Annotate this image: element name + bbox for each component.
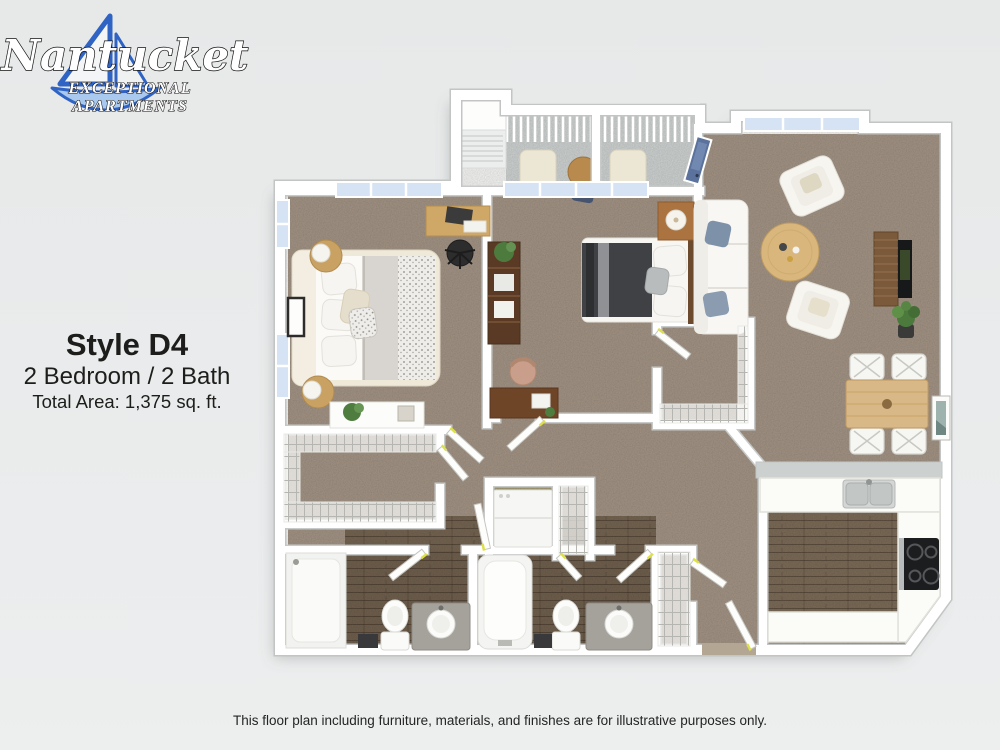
floor-plan-page: Nantucket EXCEPTIONAL APARTMENTS Style D…: [0, 0, 1000, 750]
disclaimer-text: This floor plan including furniture, mat…: [233, 713, 767, 728]
shower-head-icon: [293, 559, 299, 565]
logo-tagline-1: EXCEPTIONAL: [67, 80, 191, 97]
cooktop: [899, 538, 939, 590]
closet1-shelf: [284, 452, 300, 502]
closet1-shelf: [284, 502, 436, 522]
tv-console: [874, 232, 912, 306]
desk-1: [426, 206, 490, 236]
linen-closet-shelf: [559, 486, 588, 554]
desk-2: [490, 388, 558, 418]
vanity: [586, 603, 652, 650]
blue-pillow: [704, 220, 732, 248]
bath-mat: [358, 634, 378, 648]
media-shelf: [488, 242, 520, 344]
kitchen-knee-wall: [756, 462, 942, 478]
faucet-icon: [866, 479, 872, 485]
plan-total-area: Total Area: 1,375 sq. ft.: [32, 391, 221, 412]
plan-style-title: Style D4: [66, 327, 189, 362]
lamp-icon: [303, 381, 321, 399]
coffee-table: [761, 223, 819, 281]
bathtub: [478, 555, 532, 649]
bed1-throw: [398, 256, 436, 380]
wall-art-frame: [288, 298, 304, 336]
pillow: [321, 335, 357, 367]
utility-chase: [456, 95, 506, 168]
closet1-shelf: [284, 434, 436, 452]
kitchen-sink: [843, 479, 895, 508]
bath-mat: [534, 634, 552, 648]
logo-name: Nantucket: [0, 31, 248, 80]
decor-icon: [779, 243, 787, 251]
vanity: [412, 603, 470, 650]
coat-closet-shelf: [658, 552, 690, 646]
decor-box: [494, 274, 514, 291]
desk-chair: [510, 359, 536, 385]
tub-faucet-icon: [498, 640, 512, 646]
floor-plan: [276, 95, 950, 655]
logo-tagline-2: APARTMENTS: [71, 98, 188, 115]
dining-wall-art: [932, 396, 950, 440]
faucet-icon: [439, 606, 444, 611]
blue-pillow: [702, 290, 730, 318]
photo-frame: [398, 406, 414, 421]
nightstand-2: [658, 202, 694, 240]
plan-configuration: 2 Bedroom / 2 Bath: [24, 363, 231, 390]
bedroom1-window: [336, 182, 442, 197]
floor-plan-canvas: Nantucket EXCEPTIONAL APARTMENTS Style D…: [0, 0, 1000, 750]
plan-info-block: Style D4 2 Bedroom / 2 Bath Total Area: …: [24, 327, 231, 412]
decor-box: [494, 301, 514, 318]
console-table: [330, 402, 424, 428]
washer-dryer: [494, 490, 552, 547]
closet2-shelf: [660, 404, 748, 423]
nantucket-logo: Nantucket EXCEPTIONAL APARTMENTS: [0, 16, 248, 115]
lamp-icon: [312, 244, 330, 262]
gray-pillow: [644, 267, 669, 296]
faucet-icon: [617, 606, 622, 611]
shower: [286, 553, 346, 648]
speckled-pillow: [348, 306, 378, 339]
living-room-window: [744, 117, 860, 131]
plant-icon: [545, 407, 555, 417]
kitchen-counter-bottom: [768, 612, 898, 642]
sofa: [694, 200, 748, 334]
